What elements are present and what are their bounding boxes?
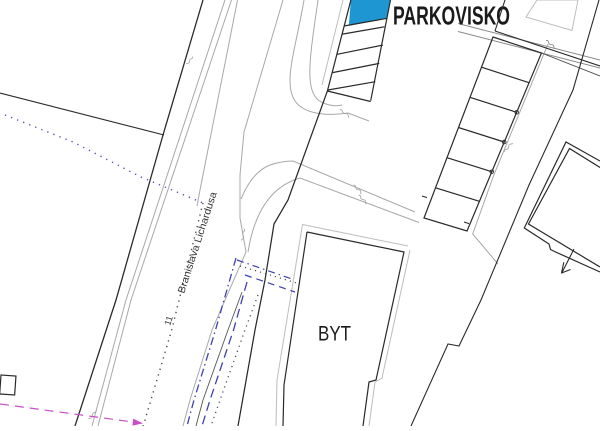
svg-text:PARKOVISKO: PARKOVISKO xyxy=(393,1,510,31)
svg-text:BYT: BYT xyxy=(318,323,351,346)
